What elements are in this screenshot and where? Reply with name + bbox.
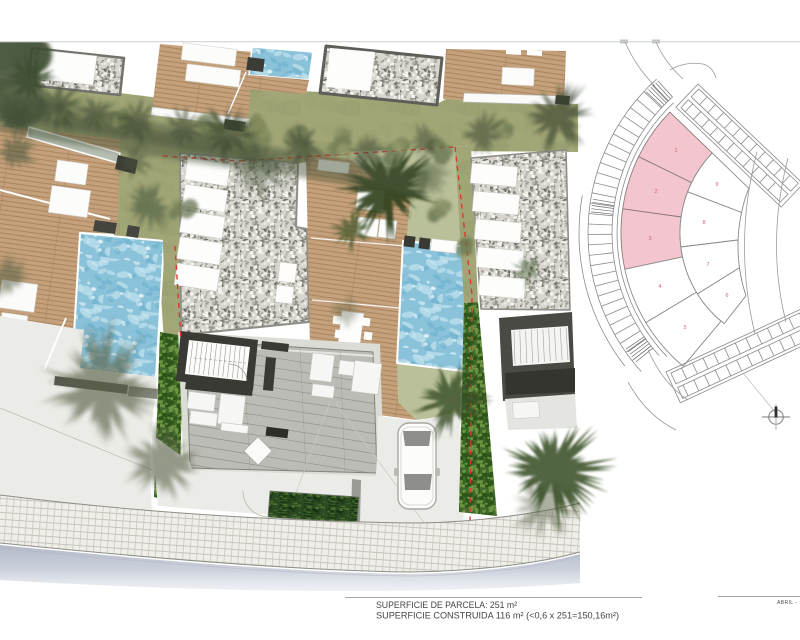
svg-text:SUPERFICIE CONSTRUIDA 116 m² (: SUPERFICIE CONSTRUIDA 116 m² (<0,6 x 251… [376,610,619,621]
svg-text:7: 7 [706,262,709,268]
svg-text:ABRIL -: ABRIL - [777,600,797,606]
svg-text:2: 2 [654,189,657,195]
svg-text:9: 9 [715,182,718,188]
svg-text:8: 8 [702,220,705,226]
svg-text:5: 5 [683,325,686,331]
svg-text:SUPERFICIE DE PARCELA: 251 m²: SUPERFICIE DE PARCELA: 251 m² [376,599,517,610]
svg-text:4: 4 [658,284,661,290]
svg-text:6: 6 [725,293,728,299]
svg-text:1: 1 [674,148,677,154]
svg-text:3: 3 [648,236,651,242]
